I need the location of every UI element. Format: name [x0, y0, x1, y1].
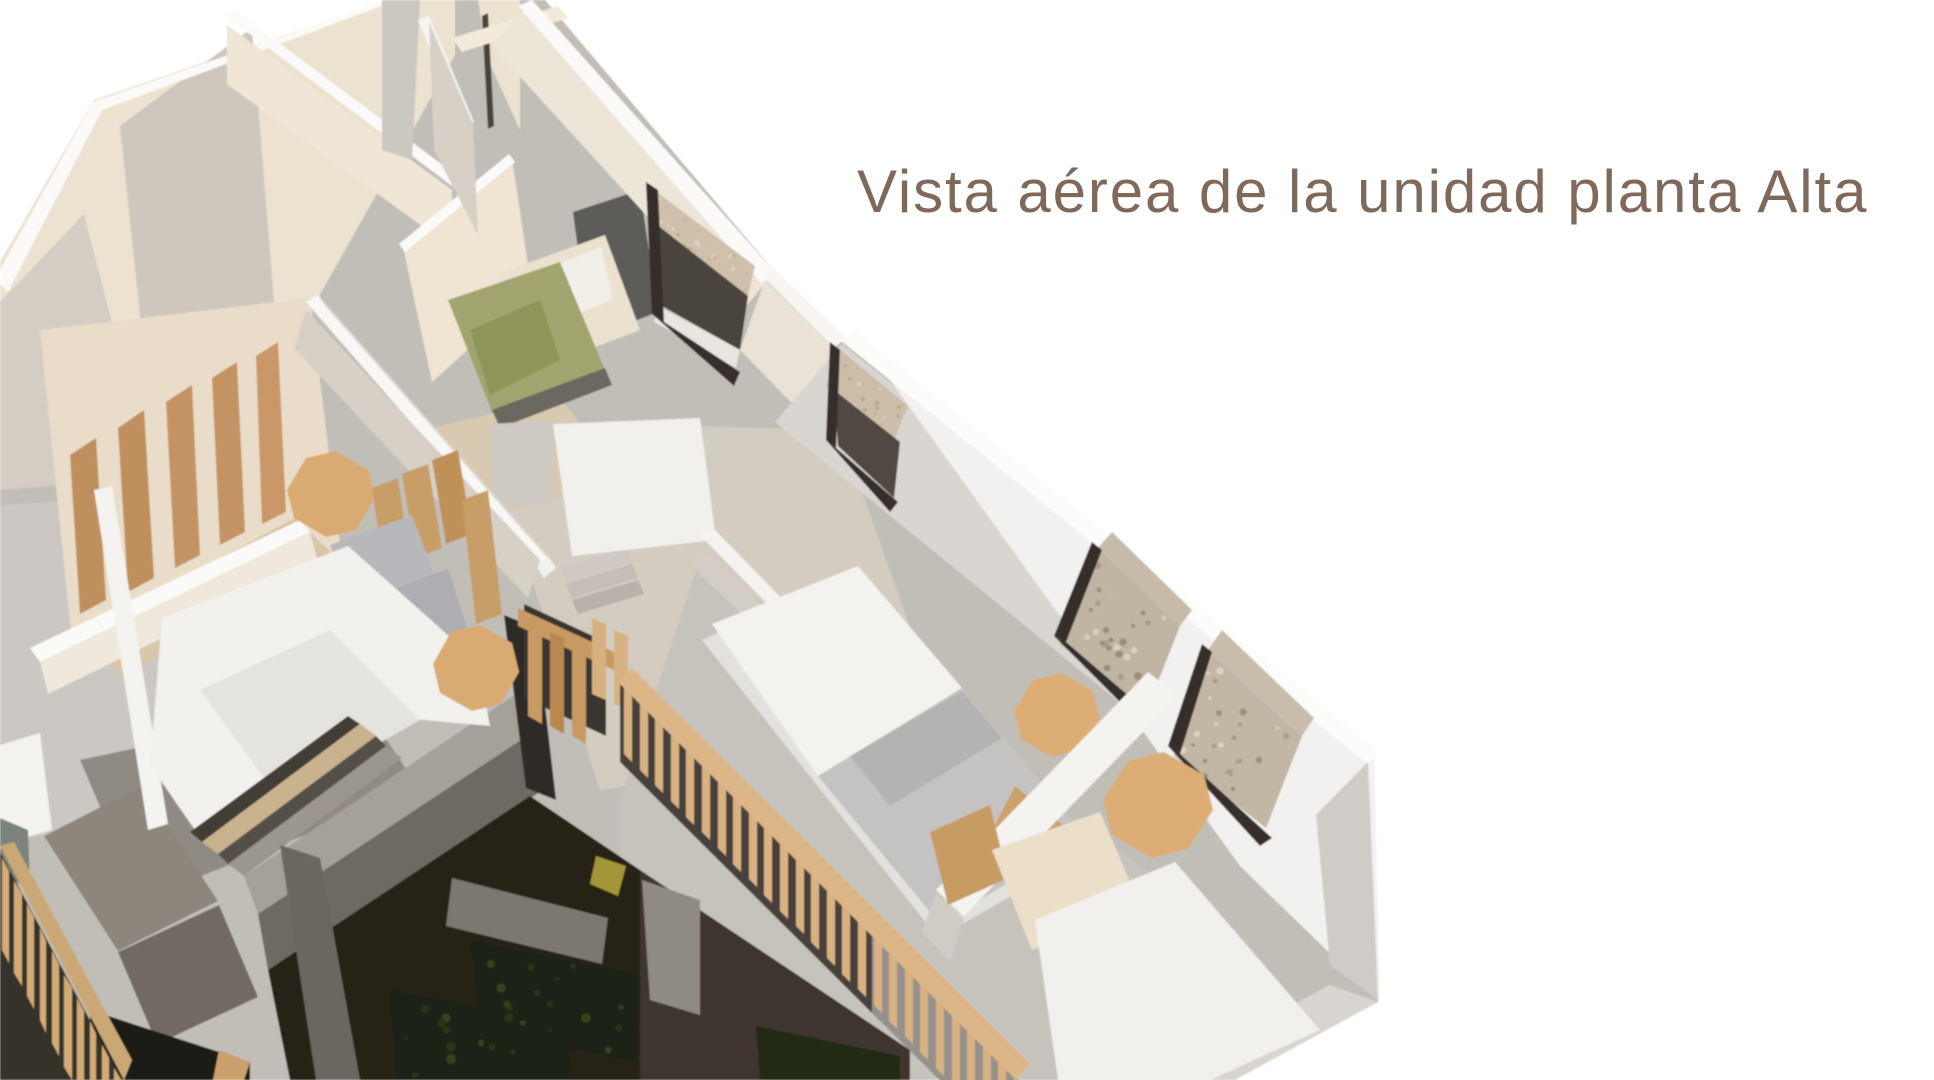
svg-text:Vista aérea de la unidad plant: Vista aérea de la unidad planta Alta [857, 158, 1868, 225]
